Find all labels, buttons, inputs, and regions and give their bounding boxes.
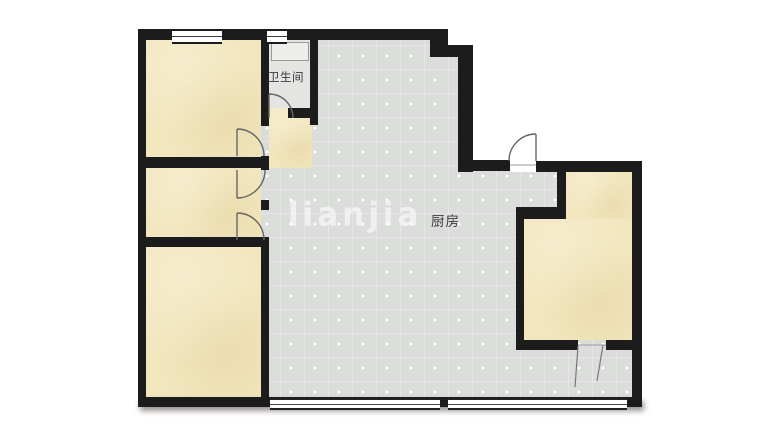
wall-entry-vertical — [458, 45, 473, 172]
wall-left-outer — [138, 29, 146, 407]
wall-top-step-vertical — [430, 29, 448, 57]
wall-bathroom-right — [310, 39, 318, 125]
outside-area — [473, 39, 642, 161]
watermark: LIANJIA — [288, 196, 422, 234]
window-top-bedroom — [172, 29, 222, 44]
wall-bedroom1-bedroom2 — [146, 157, 269, 168]
wall-bottom-window-pier — [440, 397, 448, 407]
bathroom-label: 卫生间 — [268, 69, 304, 85]
wall-right-outer — [632, 161, 642, 407]
wall-bedroom2-bedroom3 — [146, 237, 269, 247]
bedroom-right-lower-floor — [524, 219, 632, 340]
kitchen-label: 厨房 — [431, 210, 460, 230]
bedroom-right-upper-floor — [566, 172, 632, 219]
entry-threshold-area — [510, 161, 536, 172]
bathroom-counter — [271, 42, 309, 61]
bedroom-middle-left-floor — [146, 168, 261, 237]
window-top-bathroom — [267, 29, 287, 44]
floor-plan: LIANJIA — [0, 0, 780, 438]
wall-bedroom-right-bottom-right — [606, 340, 632, 350]
wall-spine-segment — [261, 200, 269, 210]
window-bottom-left — [270, 398, 440, 410]
wall-bedroom-right-bottom-left — [516, 340, 578, 350]
wall-bedroom-right-left — [516, 207, 524, 350]
wall-spine-segment — [261, 240, 269, 397]
wall-entry-left — [473, 160, 510, 171]
window-glass-line — [270, 404, 440, 405]
window-glass-line — [267, 36, 287, 37]
bedroom-top-left-floor — [146, 40, 261, 157]
window-glass-line — [448, 404, 627, 405]
wall-entry-right — [536, 161, 642, 172]
bedroom-bottom-left-floor — [146, 247, 261, 397]
window-bottom-right — [448, 398, 627, 410]
window-glass-line — [172, 36, 222, 37]
